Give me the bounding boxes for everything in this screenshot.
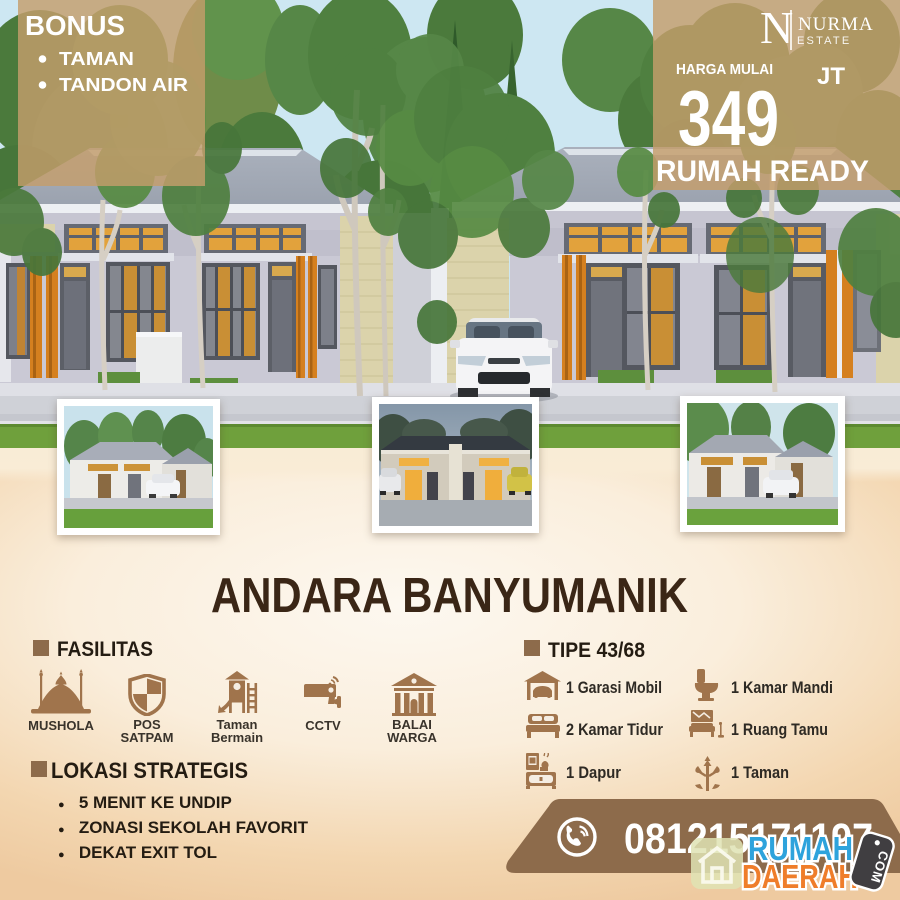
svg-text:1 Dapur: 1 Dapur — [566, 764, 622, 782]
svg-text:TAMAN: TAMAN — [59, 49, 134, 69]
svg-text:1 Kamar Mandi: 1 Kamar Mandi — [731, 679, 833, 697]
svg-text:TANDON AIR: TANDON AIR — [59, 75, 188, 95]
svg-text:JT: JT — [817, 63, 845, 90]
svg-text:LOKASI STRATEGIS: LOKASI STRATEGIS — [51, 758, 248, 783]
svg-text:1 Garasi Mobil: 1 Garasi Mobil — [566, 679, 662, 697]
svg-text:2 Kamar Tidur: 2 Kamar Tidur — [566, 721, 664, 739]
svg-text:1 Taman: 1 Taman — [731, 764, 789, 782]
svg-text:349: 349 — [678, 74, 779, 162]
svg-text:BONUS: BONUS — [25, 10, 125, 41]
svg-text:FASILITAS: FASILITAS — [57, 638, 153, 661]
svg-text:TIPE 43/68: TIPE 43/68 — [548, 639, 645, 662]
svg-text:RUMAH READY: RUMAH READY — [656, 155, 869, 188]
svg-text:DAERAH: DAERAH — [742, 858, 858, 895]
svg-text:ANDARA BANYUMANIK: ANDARA BANYUMANIK — [211, 569, 688, 623]
svg-text:1 Ruang Tamu: 1 Ruang Tamu — [731, 721, 828, 739]
